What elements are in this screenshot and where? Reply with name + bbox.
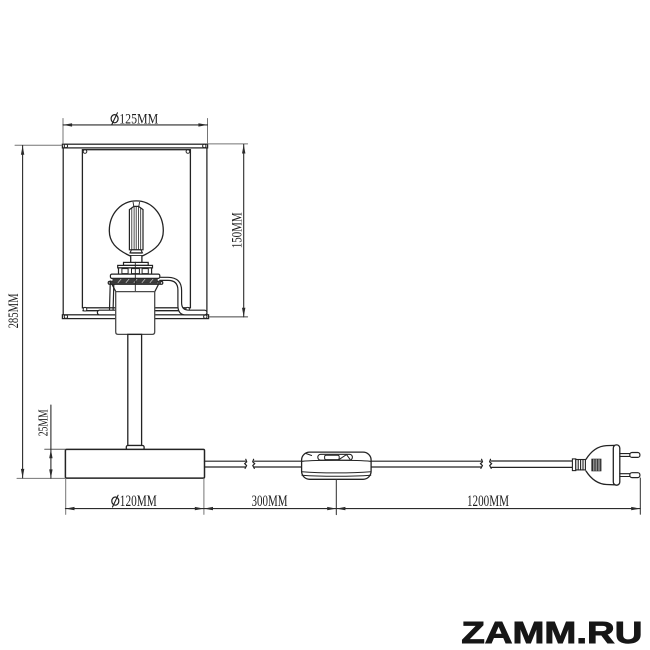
svg-text:125MM: 125MM [119, 112, 158, 128]
svg-text:1200MM: 1200MM [467, 493, 509, 510]
svg-text:150MM: 150MM [229, 212, 245, 248]
svg-text:285MM: 285MM [6, 293, 22, 328]
svg-text:ZAMM.RU: ZAMM.RU [461, 615, 642, 650]
svg-text:25MM: 25MM [37, 409, 52, 436]
svg-text:120MM: 120MM [120, 493, 157, 510]
svg-text:300MM: 300MM [252, 493, 288, 510]
